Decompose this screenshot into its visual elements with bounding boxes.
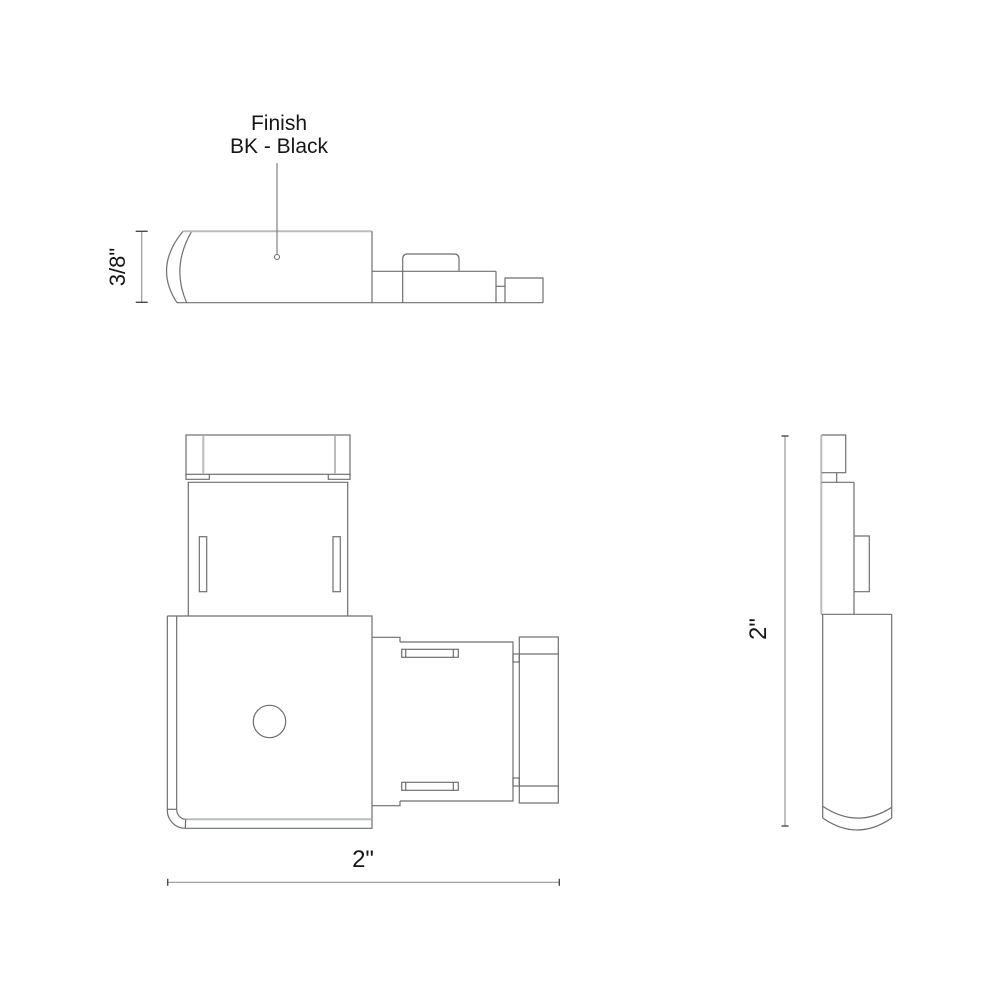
finish-callout-value: BK - Black	[179, 135, 379, 158]
top-profile-view	[136, 163, 543, 303]
side-view	[782, 435, 892, 830]
end-connector	[519, 637, 558, 803]
connector-slot-bottom	[402, 782, 459, 790]
side-body-curve-inner	[823, 806, 892, 818]
side-body-curve-outer	[823, 818, 892, 830]
finish-callout-title: Finish	[179, 112, 379, 135]
plan-arm-slot-right	[333, 537, 340, 592]
finish-leader-dot	[275, 255, 280, 260]
plan-cap	[186, 435, 350, 474]
drawing-canvas	[0, 0, 1000, 1000]
plan-arm-slot-left	[199, 537, 206, 592]
side-cap	[822, 435, 846, 473]
plan-cap-tab-left	[186, 474, 209, 479]
plan-cap-tab-right	[328, 474, 350, 479]
plan-view	[167, 435, 559, 886]
profile-bump	[403, 254, 459, 303]
finish-callout: Finish BK - Black	[179, 112, 379, 158]
connector-slot-top	[402, 649, 459, 657]
connector-tab-top	[372, 637, 400, 642]
profile-left-inner-arc	[180, 231, 192, 302]
side-height-dimension-label: 2"	[745, 579, 773, 679]
connector-tab-bottom	[372, 801, 400, 806]
mount-hole	[253, 705, 285, 737]
plan-width-dimension-label: 2"	[313, 846, 413, 874]
technical-drawing-page: { "callout": { "title": "Finish", "value…	[0, 0, 1000, 1000]
plan-corner-band-inner	[177, 809, 186, 819]
side-stub	[854, 536, 869, 592]
profile-height-dimension-label: 3/8"	[105, 217, 131, 317]
end-connector-tab-top	[513, 654, 519, 662]
profile-end-block	[505, 278, 543, 303]
end-connector-tab-bottom	[513, 778, 519, 786]
plan-body	[167, 616, 372, 828]
connector-block	[400, 642, 513, 801]
plan-arm	[188, 482, 347, 616]
